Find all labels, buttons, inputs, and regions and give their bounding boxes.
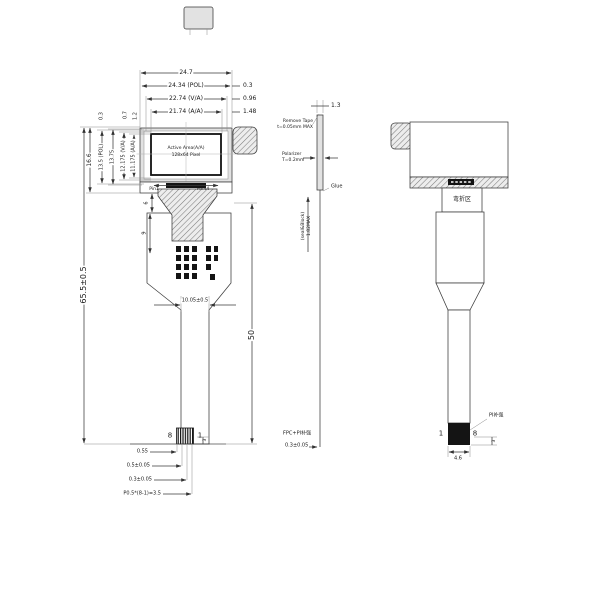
- note-glue: Glue: [331, 185, 343, 190]
- dim-right-offset-2: 0.96: [243, 96, 256, 102]
- tape-tab-back: [391, 123, 412, 149]
- dim-contact-3: 0.3±0.05: [129, 478, 152, 483]
- dim-max-thickness-1: 1.82MAX: [308, 216, 313, 236]
- note-polarizer-2: T=0.2mm: [282, 159, 304, 164]
- active-area-label-1: Active Area(A/A): [168, 147, 205, 152]
- back-glass: [410, 122, 508, 177]
- tape-tab-top: [184, 7, 213, 29]
- dim-max-thickness-2: (seal&Block): [302, 212, 307, 240]
- dim-left-top-3: 1.2: [134, 112, 139, 120]
- dim-contact-depth: 3: [204, 439, 209, 442]
- oled-module-drawing: 24.7 24.34 (POL) 22.74 (V/A) 21.74 (A/A)…: [0, 0, 600, 600]
- dim-tail-length: 50: [248, 329, 256, 341]
- back-fpc-taper: [436, 283, 484, 310]
- dim-glass-height: 13.75: [111, 149, 116, 165]
- contact-pin8-label: 8: [168, 433, 172, 440]
- dim-outline-height: 16.6: [87, 152, 93, 167]
- front-view: [80, 7, 257, 494]
- tape-tab-side: [233, 127, 257, 154]
- pi-stiffener: [448, 423, 470, 445]
- back-pin1-label: 1: [439, 431, 443, 438]
- dim-bond-6: 6: [145, 201, 150, 204]
- back-pin8-label: 8: [473, 431, 477, 438]
- dim-left-top-1: 0.3: [100, 112, 105, 120]
- note-remove-tape-2: t=0.05mm MAX: [277, 126, 313, 131]
- pin44-label: Pin44: [197, 188, 209, 193]
- dim-aa-height: 11.175 (A/A): [132, 139, 137, 173]
- dim-fold-9: 9: [143, 231, 148, 234]
- dim-total-length: 65.5±0.5: [80, 265, 88, 304]
- note-remove-tape-1: Remove Tape: [283, 120, 313, 125]
- dim-back-contact-depth: 3: [493, 440, 498, 443]
- pin1-label: Pin1: [149, 188, 159, 193]
- dim-pol-width: 24.34 (POL): [167, 83, 204, 89]
- dim-stiffener-width: 4.6: [454, 457, 462, 462]
- dim-contact-pitch: P0.5*(8-1)=3.5: [123, 492, 161, 497]
- dim-aa-width: 21.74 (A/A): [168, 109, 204, 115]
- glass-profile: [317, 115, 323, 190]
- dim-right-offset-3: 1.48: [243, 109, 256, 115]
- note-fpc-stiffener: FPC+PI补强: [283, 432, 311, 437]
- dim-outline-width: 24.7: [178, 70, 193, 76]
- dim-pol-height: 13.5 (POL): [100, 143, 105, 171]
- dim-contact-2: 0.5±0.05: [127, 464, 150, 469]
- dim-thickness-13: 1.3: [331, 103, 341, 109]
- dim-tail-width: 10.05±0.5: [181, 299, 209, 304]
- dim-left-top-2: 0.7: [124, 111, 129, 119]
- back-fpc-wide: [436, 212, 484, 283]
- bend-zone-label: 弯折区: [453, 197, 471, 203]
- active-area-label-2: 128x64 Pixel: [172, 154, 201, 159]
- contact-pin1-label: 1: [198, 433, 202, 440]
- drawing-linework: [0, 0, 600, 600]
- dim-contact-1: 0.55: [137, 450, 148, 455]
- side-view: [303, 100, 338, 447]
- back-fpc-tail: [448, 310, 470, 423]
- back-view: [391, 122, 508, 457]
- pi-stiffener-label: PI补强: [489, 414, 504, 419]
- dim-va-width: 22.74 (V/A): [168, 96, 204, 102]
- note-polarizer-1: Polarizer: [282, 153, 301, 158]
- dim-right-offset-1: 0.3: [243, 83, 253, 89]
- dim-fpc-thickness: 0.3±0.05: [285, 444, 308, 449]
- fpc-contacts: [177, 428, 194, 444]
- dim-va-height: 12.175 (V/A): [122, 139, 127, 173]
